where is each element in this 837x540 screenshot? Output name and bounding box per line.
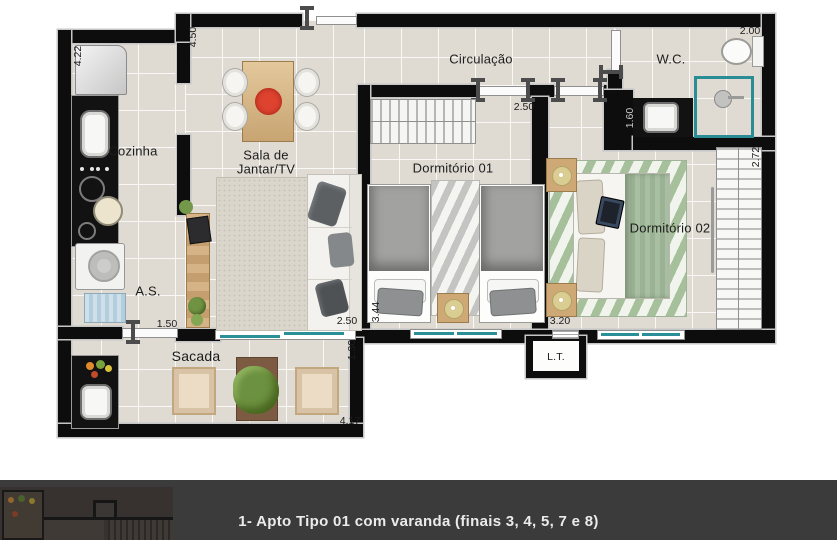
bed-pillow: [376, 287, 424, 316]
balcony-sink: [80, 384, 112, 420]
window-dorm2-glass-1: [601, 333, 639, 336]
wall-top-right: [357, 14, 775, 27]
stove-burner: [78, 222, 96, 240]
wall-kitchen-top: [58, 30, 180, 43]
dimension-wc-width: 2.00: [740, 25, 760, 37]
wall-left: [58, 30, 71, 437]
bed-blanket-green: [625, 174, 669, 298]
dorm1-door: [478, 86, 530, 96]
stove-knob: [90, 167, 94, 171]
wall-circ-bottom-b: [530, 85, 554, 97]
sala-rug: [216, 177, 312, 331]
thumbnail-food: [29, 498, 35, 504]
shower-arm: [728, 96, 744, 99]
room-label-lt: L.T.: [547, 351, 565, 363]
as-sacada-door-pivot-icon: [131, 322, 135, 342]
planter-foliage: [233, 366, 279, 414]
wardrobe-dorm1: [370, 99, 476, 144]
dimension-sala-width: 2.50: [337, 315, 357, 327]
dining-chair: [222, 68, 248, 97]
wardrobe-divider-line: [738, 148, 739, 329]
dorm2-door-pivot-icon: [598, 80, 602, 100]
dimension-sacada-depth: 1.30: [346, 340, 358, 360]
dorm2-door: [554, 86, 604, 96]
dimension-dorm1-depth: 3.44: [370, 302, 382, 322]
wardrobe-shelf-line: [371, 121, 475, 122]
dimension-sacada-width: 4.17: [340, 415, 360, 427]
floorplan-page: L.T.: [0, 0, 837, 540]
wall-as-sacada: [58, 327, 122, 339]
dimension-kitchen-depth: 4.22: [72, 46, 84, 66]
wall-top-left: [176, 14, 302, 27]
room-label-dorm2: Dormitório 02: [630, 221, 711, 236]
room-label-sala-line1: Sala de: [243, 148, 289, 163]
stove-knob: [105, 167, 109, 171]
footer-caption: 1- Apto Tipo 01 com varanda (finais 3, 4…: [0, 513, 837, 530]
bed-single: [479, 184, 545, 323]
pouf: [172, 367, 216, 415]
table-centerpiece: [255, 88, 282, 115]
dimension-dorm2-depth: 2.72: [750, 147, 762, 167]
room-label-cozinha: Cozinha: [108, 144, 157, 159]
dorm1-door-pivot-icon: [476, 80, 480, 100]
room-label-sala-line2: Jantar/TV: [237, 162, 295, 177]
window-dorm1-glass-2: [457, 332, 497, 335]
sofa-seat-divider: [308, 227, 352, 228]
room-label-wc: W.C.: [657, 52, 686, 67]
laundry-tank: [84, 293, 126, 323]
lamp: [444, 299, 464, 319]
stove-knob: [80, 167, 84, 171]
plant: [188, 297, 206, 315]
entry-door-pivot-icon: [305, 8, 309, 28]
lamp: [552, 291, 572, 311]
sofa-pillow: [327, 232, 354, 268]
window-sala-sacada-glass-2: [284, 332, 344, 335]
entry-door: [316, 16, 357, 25]
vanity-sink: [643, 102, 679, 133]
closet-door-line: [711, 187, 714, 273]
dining-chair: [222, 102, 248, 131]
window-dorm1-glass-1: [414, 332, 454, 335]
plant: [191, 314, 203, 326]
lamp: [552, 166, 572, 186]
bed-pillow: [576, 237, 606, 292]
dimension-as-width: 1.50: [157, 318, 177, 330]
room-label-circulacao: Circulação: [449, 52, 512, 67]
cooking-pot: [93, 196, 123, 226]
stove-knob: [96, 167, 100, 171]
washer-drum: [88, 250, 120, 282]
kitchen-sink: [80, 110, 110, 158]
bed-blanket: [481, 186, 543, 271]
fruit: [86, 362, 94, 370]
dimension-dorm2-width: 3.20: [550, 315, 570, 327]
footer-bar: 1- Apto Tipo 01 com varanda (finais 3, 4…: [0, 480, 837, 540]
toilet: [721, 38, 752, 65]
bed-double: [573, 173, 670, 299]
window-dorm2-glass-2: [642, 333, 680, 336]
bed-pillow: [489, 287, 537, 316]
fruit: [96, 360, 105, 369]
plant: [179, 200, 193, 214]
wall-circ-bottom-a: [358, 85, 478, 97]
wall-sala-bottom: [176, 329, 220, 341]
dining-chair: [294, 102, 320, 131]
window-vent: [552, 330, 579, 339]
toilet-tank: [752, 36, 764, 67]
pouf: [295, 367, 339, 415]
dorm1-door-pivot-icon: [526, 80, 530, 100]
dimension-wc-depth: 1.60: [624, 108, 636, 128]
shower-head: [714, 90, 732, 108]
window-sala-sacada-glass-1: [220, 335, 280, 338]
thumbnail-food: [18, 495, 25, 502]
wall-kitchen-divider-a: [177, 43, 190, 83]
dimension-dorm1-width: 2.50: [514, 101, 534, 113]
room-label-sacada: Sacada: [172, 348, 221, 364]
tv: [186, 216, 211, 245]
wc-door-pivot-icon: [601, 70, 621, 74]
fruit: [105, 365, 112, 372]
dining-chair: [294, 68, 320, 97]
bed-blanket: [369, 186, 429, 271]
wardrobe-dorm2: [716, 147, 762, 330]
dorm2-door-pivot-icon: [556, 80, 560, 100]
room-label-as: A.S.: [135, 284, 160, 299]
dimension-entry-wall: 4.50: [187, 27, 199, 47]
room-label-dorm1: Dormitório 01: [413, 161, 494, 176]
fruit: [91, 371, 98, 378]
thumbnail-food: [8, 497, 14, 503]
